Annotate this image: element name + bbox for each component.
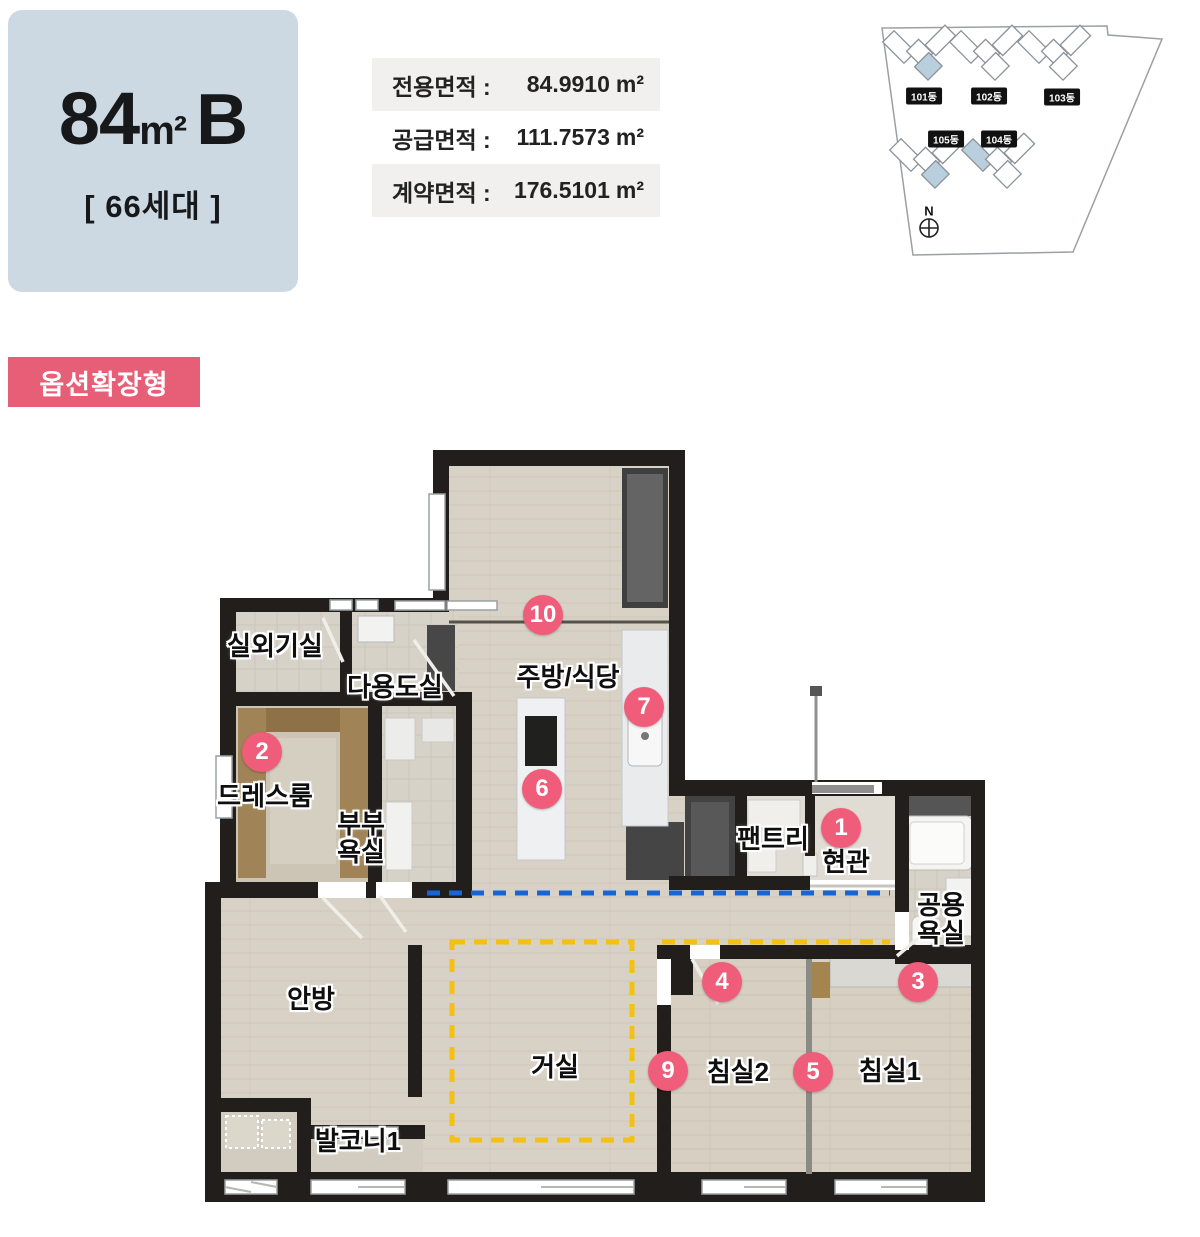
building-label-102: 102동 xyxy=(971,88,1007,105)
area-row-exclusive: 전용면적 : 84.9910 m² xyxy=(372,58,660,111)
room-label-bedroom2: 침실2 xyxy=(707,1058,769,1086)
floor-plan-graphic xyxy=(190,450,990,1210)
room-label-entrance: 현관 xyxy=(822,848,870,876)
area-row-contract: 계약면적 : 176.5101 m² xyxy=(372,164,660,217)
area-table: 전용면적 : 84.9910 m² 공급면적 : 111.7573 m² 계약면… xyxy=(372,58,660,217)
type-badge: 84 m² B [ 66세대 ] xyxy=(8,10,298,292)
marker-9: 9 xyxy=(648,1051,688,1091)
room-label-kitchen-dining: 주방/식당 xyxy=(517,663,620,691)
building-label-103: 103동 xyxy=(1044,89,1080,106)
type-letter: B xyxy=(196,79,247,161)
compass-label: N xyxy=(924,204,933,219)
marker-6: 6 xyxy=(522,769,562,809)
option-expansion-tag: 옵션확장형 xyxy=(8,357,200,407)
area-label: 공급면적 : xyxy=(392,121,491,155)
building-label-101: 101동 xyxy=(906,88,942,105)
room-label-master-bedroom: 안방 xyxy=(287,985,335,1013)
site-map: 101동 102동 103동 104동 105동 N xyxy=(872,12,1172,260)
area-label: 전용면적 : xyxy=(392,68,491,102)
compass-icon xyxy=(920,219,938,237)
area-label: 계약면적 : xyxy=(392,174,491,208)
room-label-outdoor-unit: 실외기실 xyxy=(227,632,323,660)
building-label-104: 104동 xyxy=(981,131,1017,148)
marker-1: 1 xyxy=(821,808,861,848)
area-value: 111.7573 xyxy=(516,124,609,151)
type-title: 84 m² B xyxy=(59,76,247,161)
room-label-balcony1: 발코니1 xyxy=(315,1127,401,1155)
type-unit: m² xyxy=(139,109,186,154)
marker-10: 10 xyxy=(523,595,563,635)
marker-2: 2 xyxy=(242,732,282,772)
room-label-bedroom1: 침실1 xyxy=(859,1057,921,1085)
room-label-master-bath: 부부 욕실 xyxy=(337,810,385,866)
area-unit: m² xyxy=(616,71,644,98)
area-row-supply: 공급면적 : 111.7573 m² xyxy=(372,111,660,164)
building-label-105: 105동 xyxy=(928,131,964,148)
type-size: 84 xyxy=(59,76,139,161)
marker-4: 4 xyxy=(702,962,742,1002)
marker-7: 7 xyxy=(624,687,664,727)
household-count: [ 66세대 ] xyxy=(84,181,221,226)
area-unit: m² xyxy=(616,177,644,204)
area-value: 176.5101 xyxy=(514,177,610,204)
room-label-common-bath: 공용 욕실 xyxy=(917,891,965,947)
marker-3: 3 xyxy=(898,962,938,1002)
room-label-dressroom: 드레스룸 xyxy=(217,782,313,810)
room-label-living-room: 거실 xyxy=(531,1053,579,1081)
marker-5: 5 xyxy=(793,1052,833,1092)
room-label-pantry: 팬트리 xyxy=(737,825,809,853)
floor-plan: 실외기실 다용도실 드레스룸 부부 욕실 주방/식당 팬트리 현관 공용 욕실 … xyxy=(190,450,990,1210)
site-map-graphic xyxy=(872,12,1172,260)
room-label-utility: 다용도실 xyxy=(347,673,443,701)
area-unit: m² xyxy=(616,124,644,151)
area-value: 84.9910 xyxy=(527,71,610,98)
